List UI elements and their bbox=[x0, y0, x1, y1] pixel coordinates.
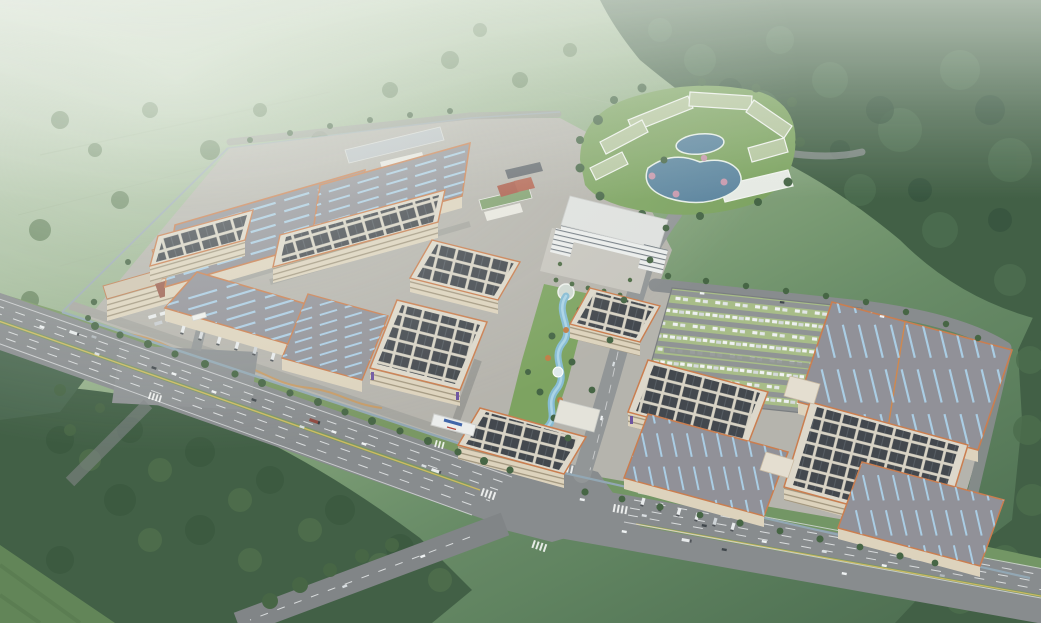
light-wash bbox=[0, 0, 1041, 623]
aerial-render bbox=[0, 0, 1041, 623]
scene-canvas bbox=[0, 0, 1041, 623]
atmosphere bbox=[0, 0, 1041, 623]
